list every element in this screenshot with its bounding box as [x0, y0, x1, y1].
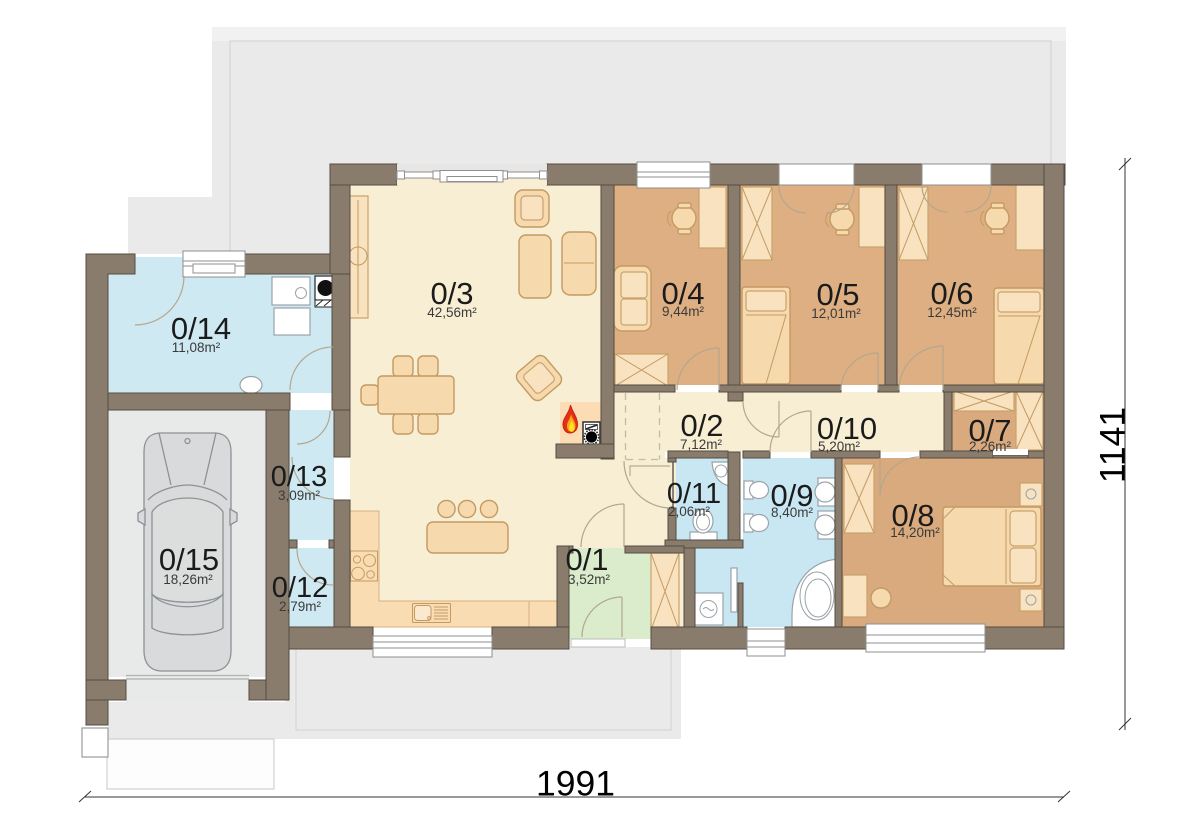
svg-text:1141: 1141 [1093, 407, 1133, 483]
svg-text:9,44m²: 9,44m² [662, 304, 705, 319]
svg-text:1991: 1991 [536, 764, 615, 804]
svg-text:7,12m²: 7,12m² [680, 437, 723, 452]
svg-text:2,06m²: 2,06m² [668, 504, 711, 519]
svg-text:3,52m²: 3,52m² [568, 572, 611, 587]
svg-text:42,56m²: 42,56m² [427, 305, 477, 320]
svg-text:8,40m²: 8,40m² [771, 505, 814, 520]
svg-text:12,01m²: 12,01m² [811, 306, 861, 321]
svg-text:5,20m²: 5,20m² [818, 439, 861, 454]
svg-text:18,26m²: 18,26m² [163, 572, 213, 587]
svg-text:3,09m²: 3,09m² [278, 488, 321, 503]
svg-text:2,79m²: 2,79m² [279, 599, 322, 614]
svg-text:14,20m²: 14,20m² [890, 525, 940, 540]
svg-text:12,45m²: 12,45m² [927, 305, 977, 320]
svg-text:11,08m²: 11,08m² [172, 340, 221, 355]
svg-text:2,26m²: 2,26m² [969, 439, 1012, 454]
